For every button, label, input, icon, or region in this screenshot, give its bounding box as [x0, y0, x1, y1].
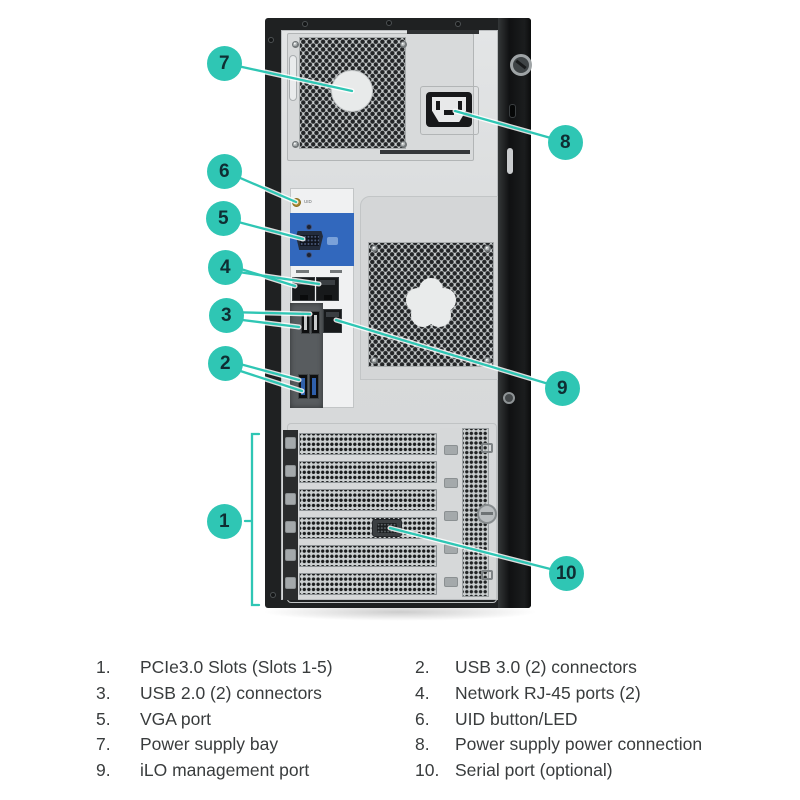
legend-item: 8.Power supply power connection — [415, 732, 702, 758]
usb2-tongue — [314, 315, 317, 330]
fan-cutout — [432, 288, 456, 312]
chassis-floor-shadow — [262, 603, 538, 621]
slot-guide-tab — [444, 511, 458, 521]
legend-item-number: 5. — [96, 709, 140, 730]
slot-guide-tab — [444, 478, 458, 488]
callout-10: 10 — [549, 556, 584, 591]
slot-latch-tab — [285, 493, 296, 505]
top-screw — [386, 20, 392, 26]
legend-item: 2.USB 3.0 (2) connectors — [415, 655, 702, 681]
psu-top-vent-slit — [407, 30, 479, 34]
latch-icon — [481, 570, 493, 580]
legend-item-label: UID button/LED — [455, 709, 578, 730]
legend-item-number: 10. — [415, 760, 455, 781]
pcie-slot-cover-serial — [299, 517, 437, 539]
legend-item-label: Power supply power connection — [455, 734, 702, 755]
slot-guide-tab — [444, 544, 458, 554]
legend-item-label: Serial port (optional) — [455, 760, 613, 781]
legend-item: 4.Network RJ-45 ports (2) — [415, 681, 702, 707]
nic-port-label — [330, 270, 342, 273]
legend-item-number: 8. — [415, 734, 455, 755]
slot-guide-tab — [444, 577, 458, 587]
power-inlet-pin — [444, 110, 454, 115]
pcie-slot-cover — [299, 461, 437, 483]
legend-item-number: 3. — [96, 683, 140, 704]
slot-latch-tab — [285, 465, 296, 477]
legend-item-number: 9. — [96, 760, 140, 781]
legend-item: 1.PCIe3.0 Slots (Slots 1-5) — [96, 655, 333, 681]
callout-6: 6 — [207, 154, 242, 189]
slot-latch-tab — [285, 577, 296, 589]
legend-item-label: USB 3.0 (2) connectors — [455, 657, 637, 678]
usb2-tongue — [304, 315, 307, 330]
callout-1: 1 — [207, 504, 242, 539]
vga-port-pins — [300, 235, 319, 246]
side-panel-slot — [507, 148, 513, 174]
legend-item: 3.USB 2.0 (2) connectors — [96, 681, 333, 707]
pcie-slot-cover — [299, 573, 437, 595]
legend-item-label: Power supply bay — [140, 734, 278, 755]
psu-screw — [400, 41, 407, 48]
slot-latch-strip — [283, 430, 298, 600]
psu-screw — [292, 141, 299, 148]
legend-item-label: iLO management port — [140, 760, 309, 781]
slot-latch-tab — [285, 437, 296, 449]
fan-grille-screw — [484, 357, 491, 364]
callout-8: 8 — [548, 125, 583, 160]
callout-3: 3 — [209, 298, 244, 333]
psu-bottom-slit — [380, 150, 470, 154]
callout-4: 4 — [208, 250, 243, 285]
uid-button — [292, 198, 301, 207]
legend-item-number: 2. — [415, 657, 455, 678]
power-inlet-pin — [458, 101, 462, 110]
slot-thumbscrew-slot — [481, 512, 493, 515]
rj45-pins — [296, 280, 311, 285]
serial-port-pins — [377, 523, 397, 533]
legend-item-number: 7. — [96, 734, 140, 755]
kensington-lock-slot — [509, 104, 516, 118]
callout-7: 7 — [207, 46, 242, 81]
rj45-pins — [326, 312, 339, 317]
psu-fan-hub — [331, 70, 373, 112]
server-rear-diagram: UID — [0, 0, 800, 640]
legend-item: 7.Power supply bay — [96, 732, 333, 758]
pcie-slot-cover — [299, 545, 437, 567]
legend-item-number: 6. — [415, 709, 455, 730]
callout-5: 5 — [206, 201, 241, 236]
pcie-slot-cover — [299, 433, 437, 455]
legend-item: 6.UID button/LED — [415, 706, 702, 732]
legend-item-label: PCIe3.0 Slots (Slots 1-5) — [140, 657, 333, 678]
pcie-slots-bracket — [245, 434, 259, 605]
slot-guide-tab — [444, 445, 458, 455]
legend-item-label: VGA port — [140, 709, 211, 730]
legend-item: 10.Serial port (optional) — [415, 758, 702, 784]
vga-screw — [306, 252, 312, 258]
callout-9: 9 — [545, 371, 580, 406]
uid-button-label: UID — [304, 200, 312, 205]
legend-item-number: 1. — [96, 657, 140, 678]
left-edge-screw — [268, 37, 274, 43]
rj45-tab — [324, 295, 332, 300]
legend-column-right: 2.USB 3.0 (2) connectors4.Network RJ-45 … — [415, 655, 702, 783]
psu-side-slot — [289, 55, 297, 101]
left-edge-screw — [270, 592, 276, 598]
fan-grille-screw — [484, 245, 491, 252]
side-panel-screw — [503, 392, 515, 404]
legend-column-left: 1.PCIe3.0 Slots (Slots 1-5)3.USB 2.0 (2)… — [96, 655, 333, 783]
psu-screw — [400, 141, 407, 148]
top-screw — [302, 21, 308, 27]
legend-item-number: 4. — [415, 683, 455, 704]
nic-port-label — [296, 270, 309, 273]
rj45-tab — [300, 295, 308, 300]
psu-screw — [292, 41, 299, 48]
slot-latch-tab — [285, 549, 296, 561]
legend-item: 9.iLO management port — [96, 758, 333, 784]
vga-screw — [306, 224, 312, 230]
fan-grille-screw — [371, 357, 378, 364]
usb3-tongue — [301, 378, 305, 395]
callout-2: 2 — [208, 346, 243, 381]
usb3-tongue — [312, 378, 316, 395]
fan-grille-screw — [371, 245, 378, 252]
latch-icon — [481, 443, 493, 453]
legend-item: 5.VGA port — [96, 706, 333, 732]
slot-latch-tab — [285, 521, 296, 533]
legend-item-label: Network RJ-45 ports (2) — [455, 683, 641, 704]
power-inlet-pin — [436, 101, 440, 110]
pcie-slot-cover — [299, 489, 437, 511]
top-screw — [455, 21, 461, 27]
rj45-pins — [320, 280, 335, 285]
vga-label-chip — [327, 237, 338, 245]
legend-item-label: USB 2.0 (2) connectors — [140, 683, 322, 704]
